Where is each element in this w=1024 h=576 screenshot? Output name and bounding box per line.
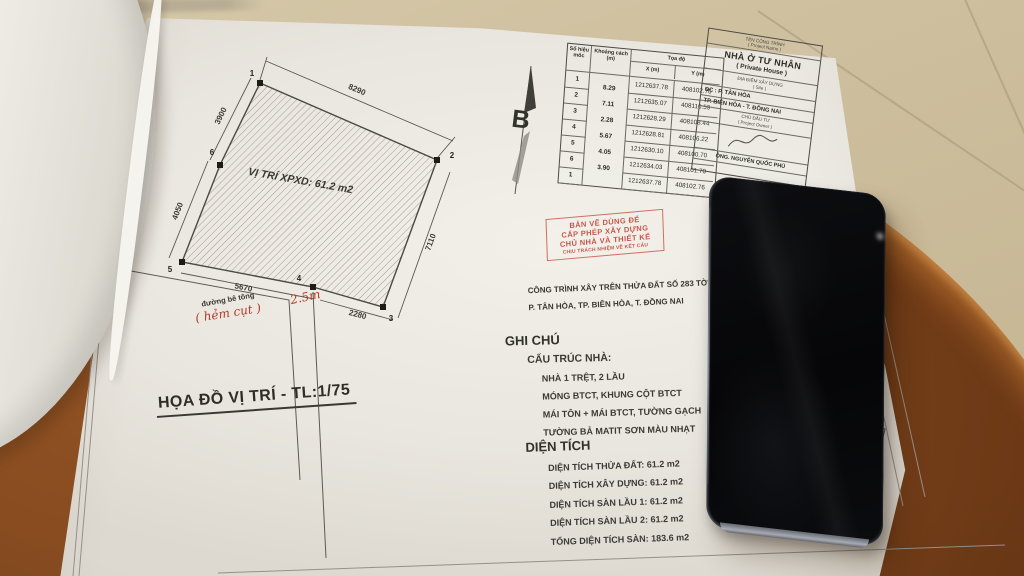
smartphone [706,175,886,547]
distance-value: 8.29 [589,83,629,94]
areas-section: DIỆN TÍCH DIỆN TÍCH THỬA ĐẤT: 61.2 m2 DI… [525,434,689,547]
distance-column: 8.29 7.11 2.28 5.67 4.05 3.90 [582,73,630,189]
floor-grout-line [962,0,1024,142]
area-line: DIỆN TÍCH SÀN LẦU 1: 61.2 m2 [549,495,688,510]
col-header-distance: Khoảng cách (m) [590,46,632,77]
col-header-point: Số hiệu mốc [566,44,592,73]
phone-reflection-glint [877,232,884,240]
notes-line: NHÀ 1 TRỆT, 2 LẦU [542,369,701,383]
distance-value: 4.05 [585,147,625,158]
notes-line: MÓNG BTCT, KHUNG CỘT BTCT [542,387,701,401]
distance-value: 3.90 [583,163,623,174]
notes-section: GHI CHÚ CẤU TRÚC NHÀ: NHÀ 1 TRỆT, 2 LẦU … [505,328,702,438]
area-line: DIỆN TÍCH SÀN LẦU 2: 61.2 m2 [550,513,689,528]
area-line: DIỆN TÍCH THỬA ĐẤT: 61.2 m2 [548,458,687,473]
distance-value: 5.67 [586,131,626,142]
title-block: TÊN CÔNG TRÌNH ( Project Name ) NHÀ Ở TƯ… [691,27,823,187]
photo-scene: 8290 7110 2280 5670 4050 3900 1 2 3 4 5 … [0,0,1024,576]
point-id: 1 [558,166,583,185]
notes-line: MÁI TÔN + MÁI BTCT, TƯỜNG GẠCH [543,405,702,419]
area-line: DIỆN TÍCH XÂY DỰNG: 61.2 m2 [549,476,688,491]
distance-value: 7.11 [588,99,628,110]
distance-value: 2.28 [587,115,627,126]
notes-subtitle: CẤU TRÚC NHÀ: [527,349,700,366]
